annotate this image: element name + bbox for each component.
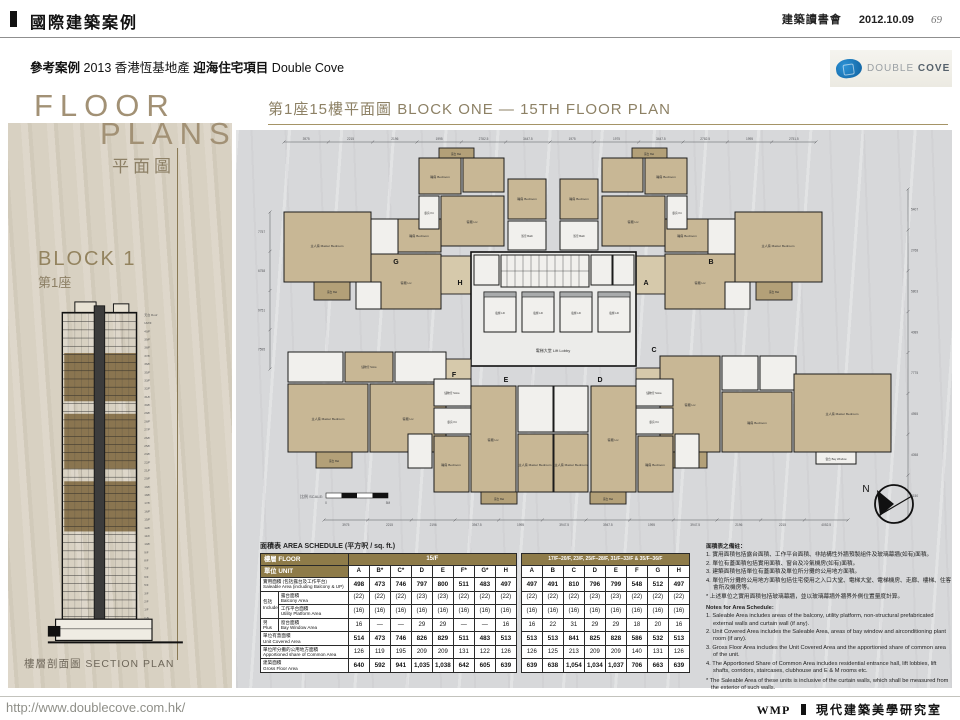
svg-text:電梯大堂 Lift Lobby: 電梯大堂 Lift Lobby	[536, 347, 570, 353]
section-floor-label: 27/F	[144, 428, 150, 432]
schedule-cell: 29	[411, 618, 432, 632]
schedule-cell: F	[626, 566, 647, 578]
svg-text:睡房 Bedroom: 睡房 Bedroom	[569, 196, 589, 201]
dimension-label: 5803	[911, 289, 918, 293]
section-floor-label: 30/F	[144, 403, 150, 407]
section-floor-labels: 天台 RoofUM/F40/F39/F38/F37/F36/F35/F33/F3…	[144, 312, 157, 620]
case-label: 參考案例	[30, 61, 80, 75]
schedule-cell: 828	[605, 632, 626, 646]
dimension-label: 2196	[735, 523, 742, 527]
schedule-cell: —	[390, 618, 411, 632]
section-floor-label: UM/F	[144, 321, 151, 325]
section-floor-label: 21/F	[144, 469, 150, 473]
section-floor-label: 39/F	[144, 338, 150, 342]
schedule-cell: —	[474, 618, 495, 632]
svg-text:睡房 Bedroom: 睡房 Bedroom	[409, 233, 429, 238]
doublecove-logo: DOUBLE COVE	[830, 50, 952, 87]
schedule-cell: 209	[584, 645, 605, 659]
schedule-cell: —	[369, 618, 390, 632]
case-developer: 香港恆基地產	[115, 61, 190, 75]
schedule-cell: 586	[626, 632, 647, 646]
area-schedule-title: 面積表 AREA SCHEDULE (平方呎 / sq. ft.)	[260, 541, 698, 551]
unit-letter-b: B	[708, 259, 713, 266]
svg-text:主人房 Master Bedroom: 主人房 Master Bedroom	[311, 416, 344, 421]
schedule-cell: (22)	[369, 591, 390, 605]
unit-letter-c: C	[651, 347, 656, 354]
dimension-label: 2196	[391, 137, 398, 141]
svg-text:儲物室 Store: 儲物室 Store	[646, 391, 662, 395]
footer-brand: WMP 現代建築美學研究室	[757, 701, 942, 718]
section-floor-label: 1/F	[144, 608, 148, 612]
section-floor-label: 31/F	[144, 395, 150, 399]
schedule-cell: 513	[542, 632, 563, 646]
dimension-label: 1995	[436, 137, 443, 141]
section-floor-label: 35/F	[144, 370, 150, 374]
section-floor-label: G/F	[144, 616, 149, 620]
schedule-cell: 514	[348, 632, 369, 646]
area-schedule: 面積表 AREA SCHEDULE (平方呎 / sq. ft.) 樓層 FLO…	[260, 541, 698, 673]
dimension-label: 4058	[911, 453, 918, 457]
schedule-cell: (22)	[453, 591, 474, 605]
schedule-cell: (22)	[390, 591, 411, 605]
schedule-cell: 640	[348, 659, 369, 673]
schedule-cell: 642	[453, 659, 474, 673]
dimension-label: 3947.5	[603, 523, 613, 527]
schedule-cell: 513	[521, 632, 542, 646]
schedule-cell: 497	[668, 578, 689, 592]
section-floor-label: 19/F	[144, 485, 150, 489]
svg-text:客廳 Liv: 客廳 Liv	[402, 416, 413, 421]
schedule-cell: (22)	[521, 591, 542, 605]
schedule-cell: F*	[453, 566, 474, 578]
dimension-label: 2215	[386, 523, 393, 527]
svg-text:客廳 Liv: 客廳 Liv	[694, 280, 705, 285]
schedule-cell: 工作平台面積Utility Platform Area	[278, 605, 348, 619]
svg-text:露台 Bal: 露台 Bal	[494, 497, 504, 501]
section-floor-label: 23/F	[144, 452, 150, 456]
schedule-cell: A	[521, 566, 542, 578]
schedule-cell: 126	[495, 645, 516, 659]
schedule-cell: 825	[584, 632, 605, 646]
section-floor-label: 11/F	[144, 534, 150, 538]
schedule-cell: 639	[668, 659, 689, 673]
svg-text:客廳 Liv: 客廳 Liv	[684, 402, 695, 407]
schedule-cell: 513	[495, 632, 516, 646]
schedule-unit-row: 單位 UNITAB*C*DEF*G*HABCDEFGH	[261, 566, 690, 578]
schedule-cell: D	[584, 566, 605, 578]
svg-text:露台 Bal: 露台 Bal	[644, 152, 654, 156]
schedule-cell: 131	[647, 645, 668, 659]
svg-text:主人房 Master Bedroom: 主人房 Master Bedroom	[825, 411, 858, 416]
schedule-cell: (16)	[432, 605, 453, 619]
schedule-cell: 29	[432, 618, 453, 632]
svg-text:主人房 Master Bedroom: 主人房 Master Bedroom	[310, 243, 343, 248]
svg-text:睡房 Bedroom: 睡房 Bedroom	[747, 420, 767, 425]
dimension-label: 4089	[911, 330, 918, 334]
svg-text:0: 0	[325, 501, 327, 505]
schedule-cell: 16	[495, 618, 516, 632]
schedule-cell: H	[495, 566, 516, 578]
schedule-cell: A	[348, 566, 369, 578]
section-floor-label: 5/F	[144, 583, 148, 587]
schedule-cell: 窗台面積Bay Window Area	[278, 618, 348, 632]
schedule-cell: 483	[474, 578, 495, 592]
schedule-cell: 797	[411, 578, 432, 592]
section-floor-label: 10/F	[144, 542, 150, 546]
logo-word-cove: COVE	[918, 63, 950, 74]
floorplans-title-zh: 平面圖	[112, 152, 175, 177]
case-subtitle: 參考案例 2013 香港恆基地產 迎海住宅項目 Double Cove	[30, 57, 344, 76]
schedule-cell: 796	[584, 578, 605, 592]
schedule-cell: 122	[474, 645, 495, 659]
schedule-cell: (22)	[474, 591, 495, 605]
svg-text:客廳 Liv: 客廳 Liv	[466, 219, 477, 224]
schedule-cell: (16)	[584, 605, 605, 619]
dimension-label: 5407	[911, 208, 918, 212]
note-item: 3. 建築面積包括單位有蓋面積及單位所分攤的公用地方面積。	[706, 569, 952, 576]
schedule-cell: 829	[432, 632, 453, 646]
schedule-cell: (16)	[453, 605, 474, 619]
svg-text:N: N	[862, 484, 869, 495]
section-floor-label: 15/F	[144, 518, 150, 522]
schedule-cell: 497	[521, 578, 542, 592]
schedule-cell: (23)	[605, 591, 626, 605]
schedule-cell: 473	[369, 632, 390, 646]
unit-letter-d: D	[597, 377, 602, 384]
floor-plan-title: 第1座15樓平面圖 BLOCK ONE — 15TH FLOOR PLAN	[268, 98, 671, 119]
schedule-cell: 22	[542, 618, 563, 632]
schedule-data-row: 包括Include露台面積Balcony Area(22)(22)(22)(23…	[261, 591, 690, 605]
svg-text:客廳 Liv: 客廳 Liv	[400, 280, 411, 285]
svg-text:廚房 Kit: 廚房 Kit	[649, 420, 659, 424]
schedule-cell: G*	[474, 566, 495, 578]
schedule-cell: 746	[390, 578, 411, 592]
schedule-cell: (23)	[584, 591, 605, 605]
note-item: 2. 單位有蓋面積包括實用面積、窗台及冷氣機房(如有)面積。	[706, 561, 952, 568]
schedule-cell: 140	[626, 645, 647, 659]
schedule-cell: 605	[474, 659, 495, 673]
schedule-data-row: 工作平台面積Utility Platform Area(16)(16)(16)(…	[261, 605, 690, 619]
unit-letter-h: H	[457, 280, 462, 287]
svg-text:主人房 Master Bedroom: 主人房 Master Bedroom	[554, 462, 587, 467]
dimension-label: 2782.5	[700, 137, 710, 141]
lift-label: 電梯 Lift	[533, 311, 543, 315]
logo-word-double: DOUBLE	[867, 63, 914, 74]
floor-plan-title-en: BLOCK ONE — 15TH FLOOR PLAN	[397, 101, 671, 118]
page-number: 69	[931, 14, 942, 26]
svg-text:睡房 Bedroom: 睡房 Bedroom	[656, 174, 676, 179]
schedule-cell: 單位 UNIT	[261, 566, 349, 578]
schedule-cell: 473	[369, 578, 390, 592]
schedule-cell: 131	[453, 645, 474, 659]
footer-url[interactable]: http://www.doublecove.com.hk/	[6, 700, 185, 715]
section-floor-label: 22/F	[144, 460, 150, 464]
lift-label: 電梯 Lift	[495, 311, 505, 315]
schedule-cell: 另Plus	[261, 618, 279, 632]
doublecove-logo-text: DOUBLE COVE	[867, 63, 950, 74]
schedule-cell: 建築面積Gross Floor Area	[261, 659, 349, 673]
svg-text:睡房 Bedroom: 睡房 Bedroom	[645, 462, 665, 467]
schedule-cell: (16)	[563, 605, 584, 619]
schedule-cell: D	[411, 566, 432, 578]
schedule-cell: 17/F–20/F, 23/F, 25/F–28/F, 31/F–33/F & …	[521, 554, 689, 566]
schedule-cell: 513	[668, 632, 689, 646]
dimension-label: 1995	[648, 523, 655, 527]
svg-text:露台 Bal: 露台 Bal	[603, 497, 613, 501]
section-floor-label: 天台 Roof	[144, 312, 157, 317]
svg-text:廚房 Kit: 廚房 Kit	[672, 211, 682, 215]
schedule-cell: G	[647, 566, 668, 578]
dimension-label: 2768	[911, 249, 918, 253]
notes-star-en: * The Saleable Area of these units is in…	[706, 678, 952, 693]
schedule-cell: 125	[542, 645, 563, 659]
north-arrow: N	[862, 484, 913, 523]
footer-separator	[801, 704, 806, 715]
schedule-cell: 483	[474, 632, 495, 646]
dimension-label: 3447.5	[656, 137, 666, 141]
schedule-cell: 單位有蓋面積Unit Covered Area	[261, 632, 349, 646]
schedule-cell: 511	[453, 632, 474, 646]
section-floor-label: 37/F	[144, 354, 150, 358]
section-floor-label: 25/F	[144, 444, 150, 448]
doublecove-logo-icon	[835, 57, 863, 79]
schedule-cell: (22)	[647, 591, 668, 605]
schedule-cell: (22)	[495, 591, 516, 605]
schedule-cell: 826	[411, 632, 432, 646]
schedule-cell: C	[563, 566, 584, 578]
schedule-cell: (16)	[348, 605, 369, 619]
svg-text:浴室 Bath: 浴室 Bath	[521, 234, 533, 238]
dimension-label: 1975	[569, 137, 576, 141]
schedule-cell: 639	[495, 659, 516, 673]
schedule-cell: 露台面積Balcony Area	[278, 591, 348, 605]
section-floor-label: 32/F	[144, 387, 150, 391]
schedule-cell: 29	[605, 618, 626, 632]
dimension-label: 1995	[517, 523, 524, 527]
schedule-cell: (16)	[495, 605, 516, 619]
schedule-cell: (22)	[668, 591, 689, 605]
section-floor-label: 3/F	[144, 591, 148, 595]
floor-plan-title-zh: 第1座15樓平面圖	[268, 101, 392, 118]
svg-text:儲物室 Store: 儲物室 Store	[444, 391, 460, 395]
section-plan-drawing: 天台 RoofUM/F40/F39/F38/F37/F36/F35/F33/F3…	[45, 300, 205, 652]
section-floor-label: 28/F	[144, 419, 150, 423]
schedule-cell: 126	[668, 645, 689, 659]
schedule-cell: C*	[390, 566, 411, 578]
schedule-cell: 810	[563, 578, 584, 592]
dimension-label: 7757	[258, 230, 265, 234]
section-floor-label: 33/F	[144, 378, 150, 382]
header-accent-bar	[10, 11, 17, 27]
schedule-data-row: 另Plus窗台面積Bay Window Area16——2929——161622…	[261, 618, 690, 632]
schedule-cell: 18	[626, 618, 647, 632]
lift-label: 電梯 Lift	[571, 311, 581, 315]
dimension-label: 9751	[258, 308, 265, 312]
schedule-cell: 746	[390, 632, 411, 646]
section-floor-label: 20/F	[144, 477, 150, 481]
schedule-cell: 592	[369, 659, 390, 673]
schedule-cell: (22)	[563, 591, 584, 605]
schedule-cell: 209	[432, 645, 453, 659]
schedule-cell: 497	[495, 578, 516, 592]
schedule-cell: 1,035	[411, 659, 432, 673]
schedule-cell: 209	[605, 645, 626, 659]
section-floor-label: 7/F	[144, 567, 148, 571]
note-item: 4. The Apportioned Share of Common Area …	[706, 661, 952, 676]
block-name-en: BLOCK 1	[38, 248, 136, 271]
schedule-cell: (23)	[411, 591, 432, 605]
schedule-cell: 512	[647, 578, 668, 592]
schedule-cell: 1,034	[584, 659, 605, 673]
schedule-cell: 16	[521, 618, 542, 632]
schedule-cell: (23)	[432, 591, 453, 605]
notes-star-zh: * 上述單位之實用面積包括玻璃幕牆，並以玻璃幕牆外牆界外側位置量度計算。	[706, 594, 952, 601]
section-floor-label: 9/F	[144, 550, 148, 554]
schedule-cell: 29	[584, 618, 605, 632]
section-floor-label: 6/F	[144, 575, 148, 579]
dimension-label: 3447.5	[523, 137, 533, 141]
schedule-cell: H	[668, 566, 689, 578]
schedule-cell: 實用面積 (包括露台及工作平台)Saleable Area (including…	[261, 578, 349, 592]
schedule-cell: 31	[563, 618, 584, 632]
schedule-cell: 638	[542, 659, 563, 673]
schedule-cell: 1,038	[432, 659, 453, 673]
schedule-cell: 639	[521, 659, 542, 673]
footer-studio: 現代建築美學研究室	[816, 703, 942, 717]
schedule-cell: 15/F	[348, 554, 516, 566]
schedule-cell: 532	[647, 632, 668, 646]
schedule-cell: (22)	[348, 591, 369, 605]
section-plan-caption: 樓層剖面圖 SECTION PLAN	[24, 656, 174, 671]
date: 2012.10.09	[859, 14, 914, 26]
header-meta: 建築讀書會 2012.10.09 69	[782, 11, 942, 27]
dimension-label: 3975	[342, 523, 349, 527]
dimension-label: 3947.5	[472, 523, 482, 527]
scale-bar: 比例 SCALE: 0 5M	[300, 493, 391, 505]
section-floor-label: 12/F	[144, 526, 150, 530]
schedule-cell: 1,037	[605, 659, 626, 673]
schedule-cell: 663	[647, 659, 668, 673]
svg-text:露台 Bal: 露台 Bal	[329, 459, 339, 463]
floor-plan-title-rule	[268, 124, 948, 125]
dimension-label: 6758	[258, 269, 265, 273]
schedule-floor-row: 樓層 FLOOR15/F17/F–20/F, 23/F, 25/F–28/F, …	[261, 554, 690, 566]
schedule-cell: (16)	[411, 605, 432, 619]
note-item: 4. 單位所分攤的公用地方面積包括住宅使用之入口大堂、電梯大堂、電梯機房、走廊、…	[706, 578, 952, 593]
club-name: 建築讀書會	[782, 14, 842, 26]
schedule-cell: 491	[542, 578, 563, 592]
schedule-cell: (16)	[474, 605, 495, 619]
svg-text:客廳 Liv: 客廳 Liv	[487, 437, 498, 442]
dimension-label: 3947.5	[690, 523, 700, 527]
schedule-cell: (16)	[626, 605, 647, 619]
schedule-cell: 126	[521, 645, 542, 659]
unit-letter-g: G	[393, 259, 399, 266]
schedule-cell: B	[542, 566, 563, 578]
block-name-zh: 第1座	[38, 272, 71, 291]
schedule-cell: 706	[626, 659, 647, 673]
schedule-cell: 單位所分攤的公用地方面積Apportioned share of Common …	[261, 645, 349, 659]
schedule-cell: 119	[369, 645, 390, 659]
schedule-data-row: 建築面積Gross Floor Area6405929411,0351,0386…	[261, 659, 690, 673]
svg-text:窗台 Bay Window: 窗台 Bay Window	[825, 457, 846, 461]
section-floor-label: 29/F	[144, 411, 150, 415]
dimension-label: 3975	[303, 137, 310, 141]
section-floor-label: 16/F	[144, 509, 150, 513]
note-item: 2. Unit Covered Area includes the Saleab…	[706, 629, 952, 644]
dimension-label: 2196	[430, 523, 437, 527]
note-item: 1. Saleable Area includes areas of the b…	[706, 613, 952, 628]
case-project-zh: 迎海住宅項目	[193, 61, 268, 75]
schedule-cell: 樓層 FLOOR	[261, 554, 349, 566]
section-floor-label: 26/F	[144, 436, 150, 440]
schedule-cell: (16)	[668, 605, 689, 619]
svg-text:廚房 Kit: 廚房 Kit	[424, 211, 434, 215]
svg-text:露台 Bal: 露台 Bal	[451, 152, 461, 156]
schedule-data-row: 實用面積 (包括露台及工作平台)Saleable Area (including…	[261, 578, 690, 592]
note-item: 3. Gross Floor Area includes the Unit Co…	[706, 645, 952, 660]
dimension-label: 2782.5	[479, 137, 489, 141]
svg-text:儲物室 Store: 儲物室 Store	[361, 365, 377, 369]
schedule-cell: 841	[563, 632, 584, 646]
schedule-cell: 20	[647, 618, 668, 632]
svg-text:客廳 Liv: 客廳 Liv	[607, 437, 618, 442]
schedule-cell: 548	[626, 578, 647, 592]
notes-title-zh: 面積表之備註：	[706, 544, 952, 551]
svg-text:睡房 Bedroom: 睡房 Bedroom	[517, 196, 537, 201]
section-floor-label: 36/F	[144, 362, 150, 366]
svg-text:廚房 Kit: 廚房 Kit	[447, 420, 457, 424]
schedule-cell: 941	[390, 659, 411, 673]
section-floor-label: 2/F	[144, 599, 148, 603]
schedule-cell: 209	[411, 645, 432, 659]
dimension-label: 7595	[258, 348, 265, 352]
dimension-label: 2215	[779, 523, 786, 527]
unit-letter-a: A	[643, 280, 648, 287]
schedule-cell: 799	[605, 578, 626, 592]
dimension-label: 4052.5	[821, 523, 831, 527]
footer-rule	[0, 696, 960, 697]
schedule-cell: (16)	[390, 605, 411, 619]
schedule-cell: 498	[348, 578, 369, 592]
dimension-label: 2215	[347, 137, 354, 141]
section-floor-label: 8/F	[144, 559, 148, 563]
slide-page: { "header": { "bar_title": "國際建築案例", "cl…	[0, 0, 960, 720]
schedule-cell: (16)	[369, 605, 390, 619]
schedule-cell: B*	[369, 566, 390, 578]
notes-title-en: Notes for Area Schedule:	[706, 605, 952, 612]
schedule-cell: (16)	[605, 605, 626, 619]
unit-letter-f: F	[452, 372, 457, 379]
schedule-cell: —	[453, 618, 474, 632]
schedule-cell: 800	[432, 578, 453, 592]
svg-text:浴室 Bath: 浴室 Bath	[573, 234, 585, 238]
lift-label: 電梯 Lift	[609, 311, 619, 315]
schedule-data-row: 單位所分攤的公用地方面積Apportioned share of Common …	[261, 645, 690, 659]
dimension-label: 1975	[613, 137, 620, 141]
schedule-cell: (16)	[647, 605, 668, 619]
case-project-en: Double Cove	[272, 61, 344, 75]
note-item: 1. 實用面積包括露台面積、工作平台面積、非結構性外牆預製組件及玻璃幕牆(如有)…	[706, 552, 952, 559]
schedule-cell: (16)	[521, 605, 542, 619]
schedule-data-row: 單位有蓋面積Unit Covered Area51447374682682951…	[261, 632, 690, 646]
schedule-cell: (22)	[626, 591, 647, 605]
dimension-label: 3947.5	[559, 523, 569, 527]
section-floor-label: 40/F	[144, 329, 150, 333]
footer-wmp: WMP	[757, 703, 791, 717]
section-floor-label: 18/F	[144, 493, 150, 497]
dimension-label: 7775	[911, 371, 918, 375]
